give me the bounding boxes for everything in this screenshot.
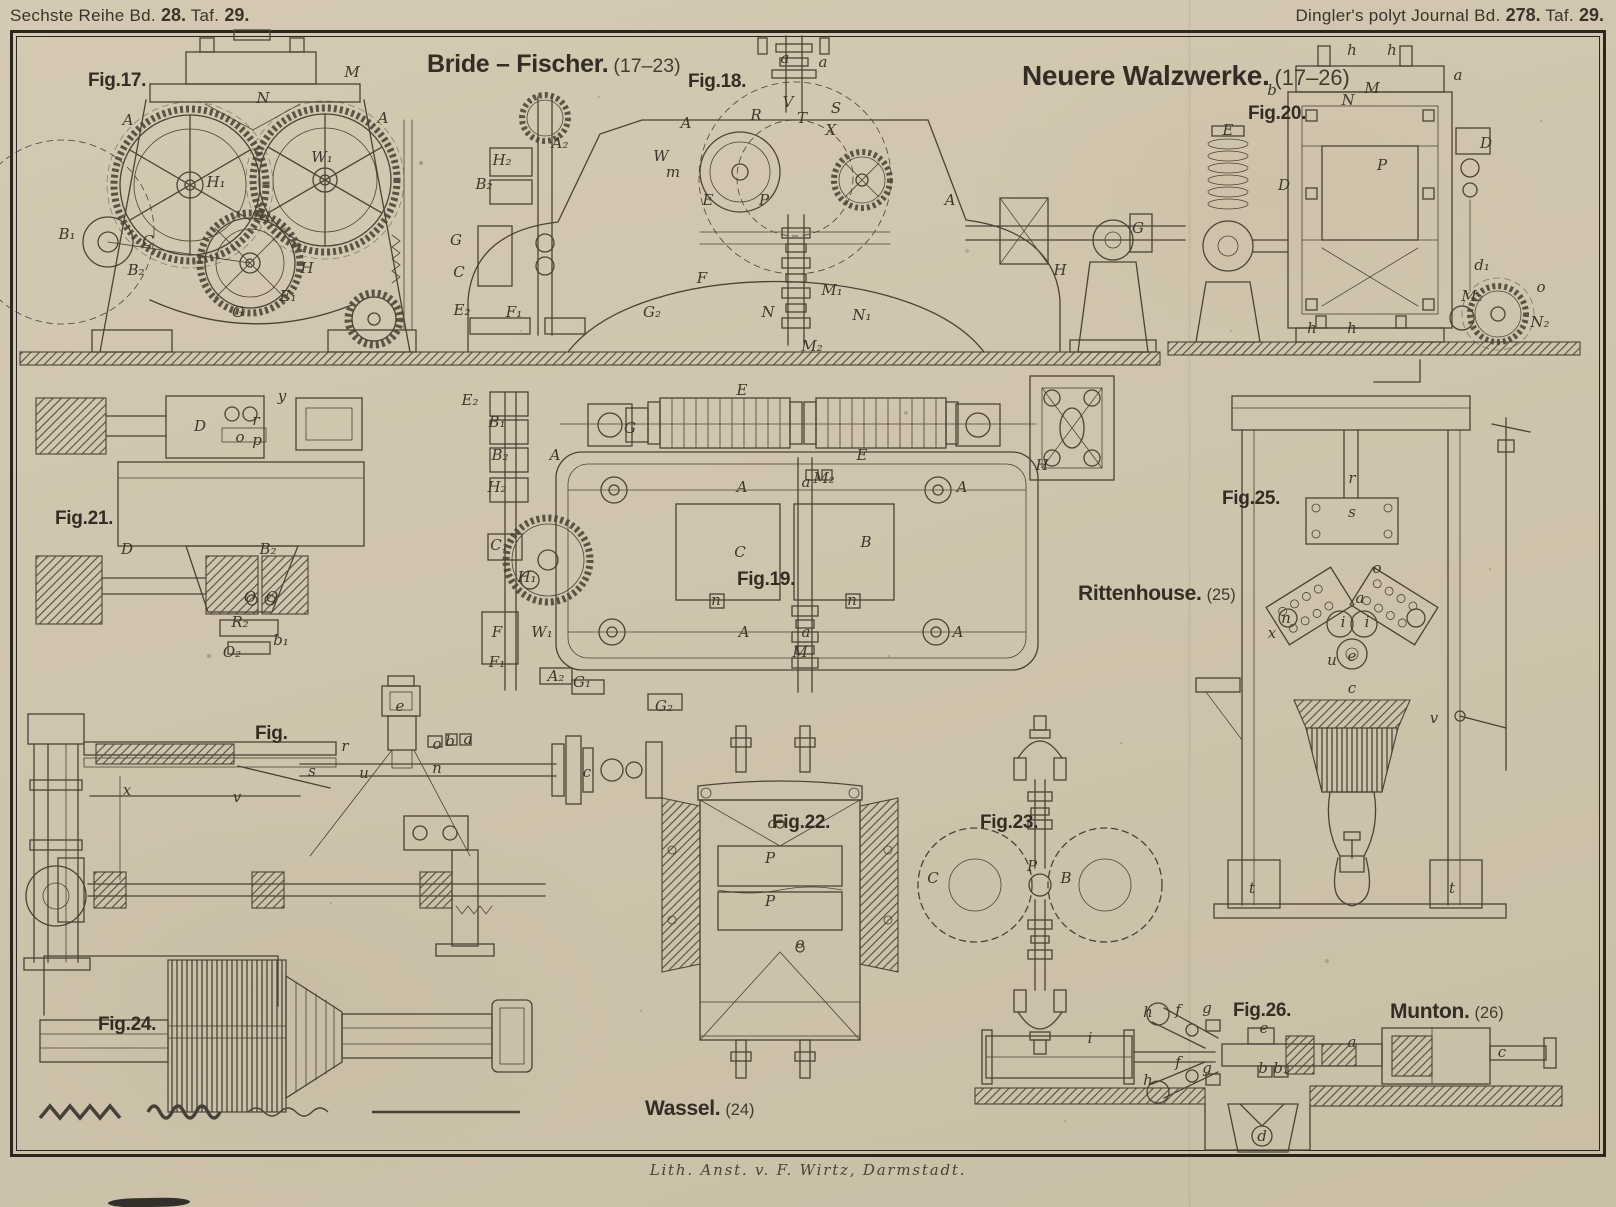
fig18-label: Fig.18. <box>688 71 746 93</box>
fig25-label: Fig.25. <box>1222 488 1280 510</box>
fig26-label: Fig.26. <box>1233 1000 1291 1022</box>
fig17-label: Fig.17. <box>88 70 146 92</box>
ink-smudge <box>108 1197 190 1207</box>
fig24-label: Fig.24. <box>98 1014 156 1036</box>
fig19-drawing <box>482 376 1114 710</box>
paper-specks <box>0 0 2 2</box>
fig23-label: Fig.23. <box>980 812 1038 834</box>
fig24-drawing <box>40 956 532 1118</box>
title-munton: Munton.(26) <box>1390 1000 1504 1024</box>
lithographer-credit: Lith. Anst. v. F. Wirtz, Darmstadt. <box>0 1161 1616 1179</box>
fig21-label: Fig.21. <box>55 508 113 530</box>
fig22-label: Fig.22. <box>772 812 830 834</box>
fig20-label: Fig.20. <box>1248 103 1306 125</box>
title-neuere-walzwerke-range: (17–26) <box>1275 65 1350 90</box>
fig23-drawing <box>918 716 1162 1054</box>
fig-unnumbered-drawing <box>24 676 662 970</box>
ground-hatching <box>20 342 1580 365</box>
title-neuere-walzwerke-name: Neuere Walzwerke. <box>1022 60 1270 91</box>
fig25-drawing <box>1196 360 1530 918</box>
fig22-drawing <box>662 726 898 1078</box>
fig26-drawing <box>975 1003 1562 1152</box>
title-bride-fischer-range: (17–23) <box>613 55 680 77</box>
fig17-drawing <box>0 30 416 352</box>
fig-unnumbered-label: Fig. <box>255 723 288 745</box>
title-rittenhouse-name: Rittenhouse. <box>1078 582 1202 605</box>
title-bride-fischer: Bride – Fischer.(17–23) <box>427 50 681 79</box>
title-neuere-walzwerke: Neuere Walzwerke.(17–26) <box>1022 60 1350 92</box>
plate-drawing <box>0 0 1616 1207</box>
title-rittenhouse: Rittenhouse.(25) <box>1078 582 1236 606</box>
title-wassel-range: (24) <box>725 1101 754 1119</box>
plate-page: Sechste Reihe Bd. 28. Taf. 29. Dingler's… <box>0 0 1616 1207</box>
title-wassel-name: Wassel. <box>645 1097 720 1120</box>
title-munton-name: Munton. <box>1390 1000 1470 1023</box>
title-munton-range: (26) <box>1475 1004 1504 1022</box>
paper-crease <box>1188 0 1191 1207</box>
title-rittenhouse-range: (25) <box>1207 586 1236 604</box>
title-wassel: Wassel.(24) <box>645 1097 754 1121</box>
fig19-label: Fig.19. <box>737 569 795 591</box>
title-bride-fischer-name: Bride – Fischer. <box>427 50 608 78</box>
